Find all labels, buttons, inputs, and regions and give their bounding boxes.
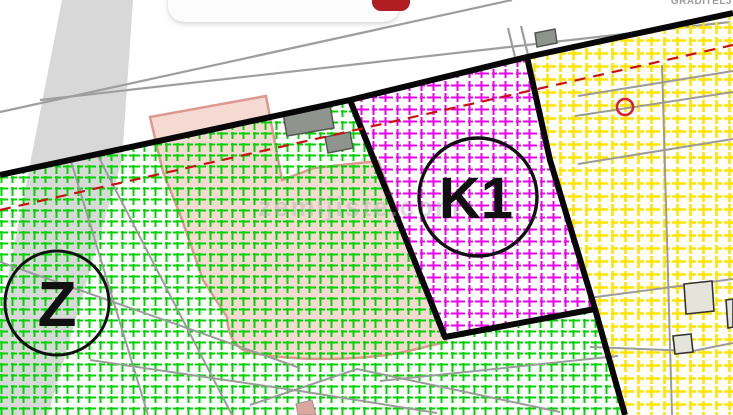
map-viewer: zemljiste.com Z K1 GRADITELJ [0, 0, 733, 415]
red-button[interactable] [372, 0, 410, 11]
zone-z-label: Z [37, 268, 76, 340]
street-label: GRADITELJ [671, 0, 732, 7]
top-panel[interactable] [168, 0, 400, 22]
watermark-text: zemljiste.com [258, 192, 461, 222]
zone-k1-label: K1 [439, 166, 513, 231]
zoning-map-canvas[interactable]: zemljiste.com Z K1 [0, 0, 733, 415]
